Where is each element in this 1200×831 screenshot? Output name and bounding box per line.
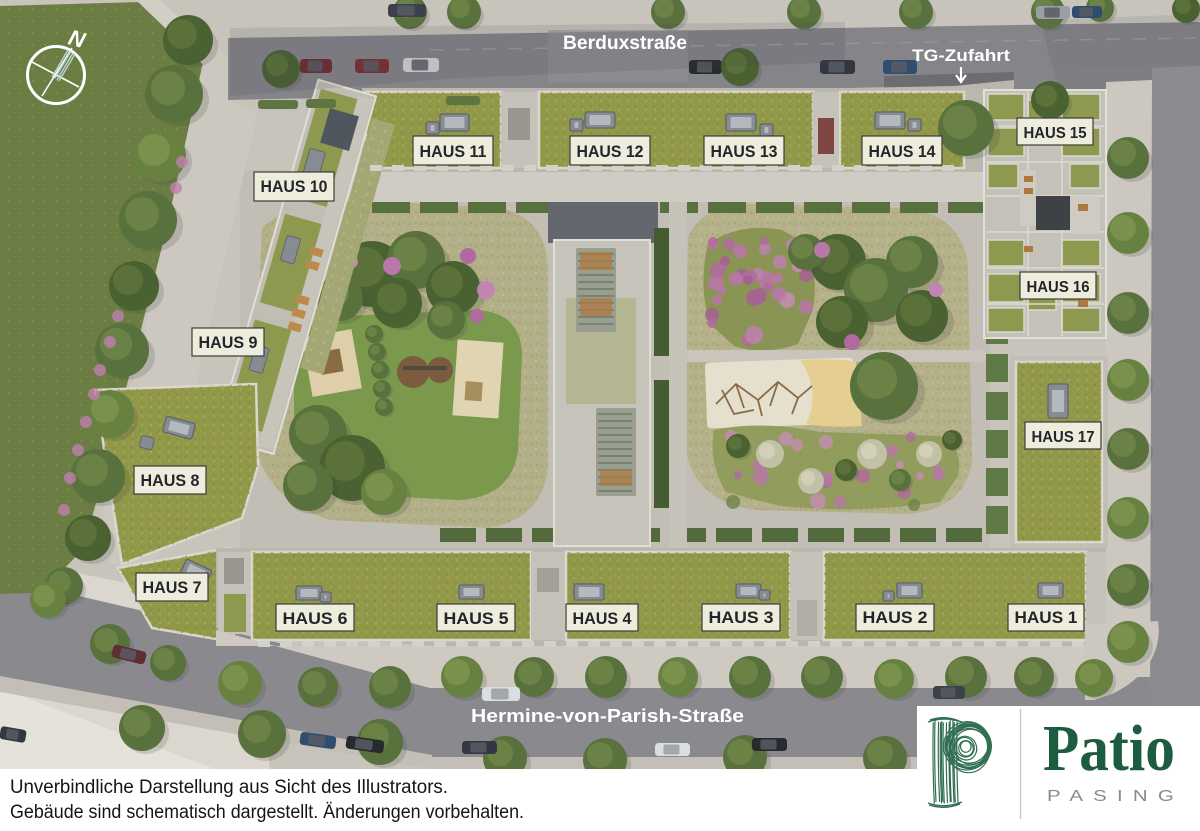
svg-text:HAUS 13: HAUS 13 [711, 142, 778, 161]
svg-text:HAUS 11: HAUS 11 [420, 142, 487, 161]
svg-text:Berduxstraße: Berduxstraße [563, 33, 687, 54]
svg-text:HAUS 3: HAUS 3 [709, 608, 774, 627]
svg-text:Gebäude sind schematisch darge: Gebäude sind schematisch dargestellt. Än… [10, 802, 524, 823]
svg-text:HAUS 2: HAUS 2 [863, 608, 928, 627]
svg-text:HAUS 7: HAUS 7 [143, 578, 202, 597]
svg-text:HAUS 12: HAUS 12 [577, 142, 644, 161]
svg-text:Hermine-von-Parish-Straße: Hermine-von-Parish-Straße [471, 706, 744, 726]
svg-text:HAUS 5: HAUS 5 [444, 609, 509, 628]
svg-text:HAUS 17: HAUS 17 [1032, 429, 1095, 446]
svg-text:PASING: PASING [1047, 788, 1184, 805]
svg-text:HAUS 9: HAUS 9 [199, 333, 258, 352]
svg-text:HAUS 1: HAUS 1 [1015, 608, 1078, 627]
svg-text:HAUS 14: HAUS 14 [869, 142, 936, 161]
svg-text:HAUS 15: HAUS 15 [1024, 125, 1087, 142]
svg-text:HAUS 4: HAUS 4 [573, 609, 633, 628]
svg-text:HAUS 16: HAUS 16 [1027, 279, 1090, 296]
svg-text:HAUS 8: HAUS 8 [141, 471, 200, 490]
svg-text:Patio: Patio [1043, 712, 1175, 785]
svg-text:TG-Zufahrt: TG-Zufahrt [912, 46, 1010, 65]
svg-text:HAUS 10: HAUS 10 [261, 177, 328, 196]
svg-text:HAUS 6: HAUS 6 [283, 609, 348, 628]
svg-text:Unverbindliche Darstellung aus: Unverbindliche Darstellung aus Sicht des… [10, 777, 448, 798]
